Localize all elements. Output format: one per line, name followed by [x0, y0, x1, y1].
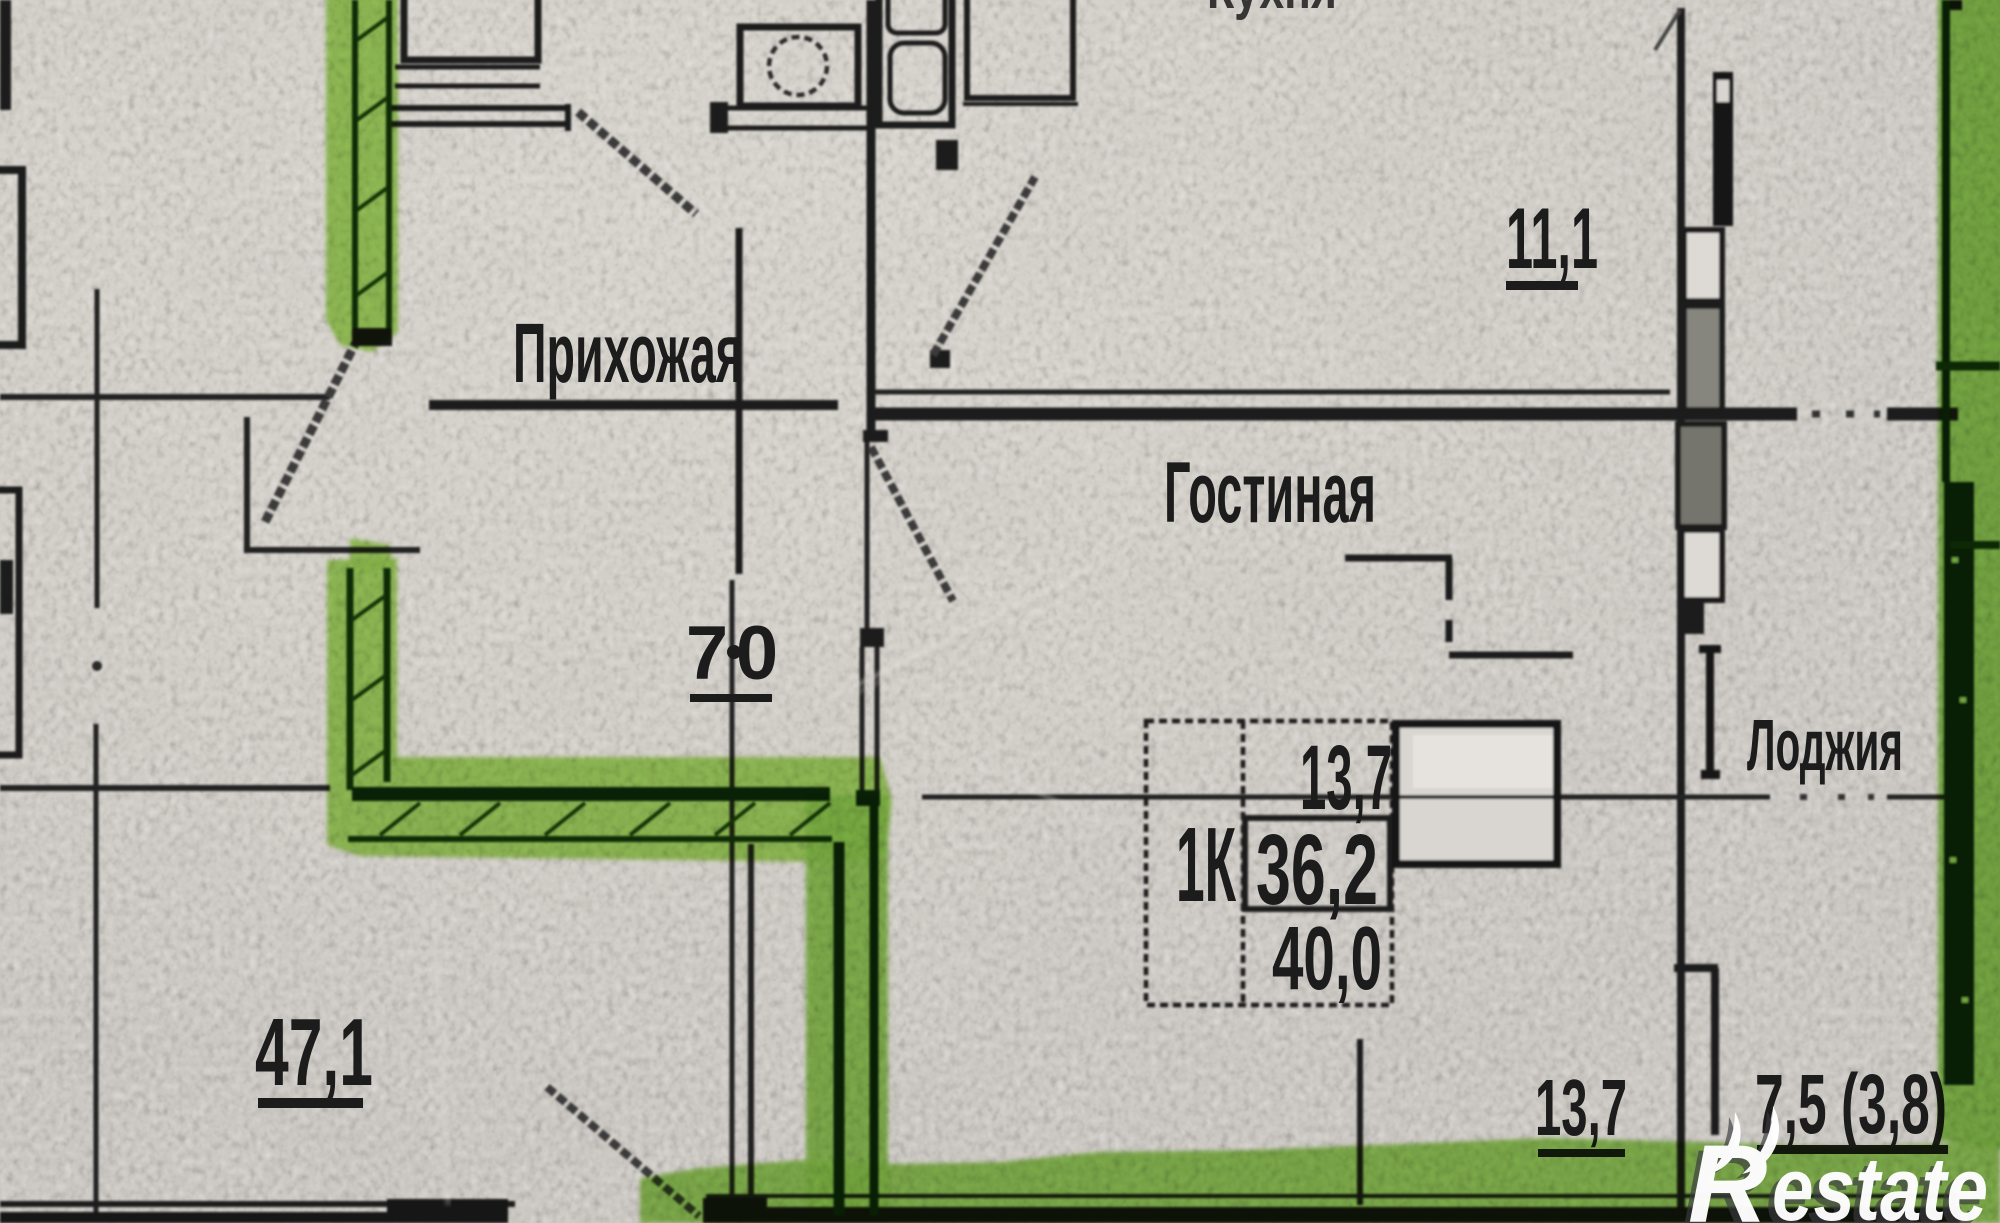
svg-text:Лоджия: Лоджия: [1747, 706, 1903, 786]
svg-text:11,1: 11,1: [1506, 191, 1598, 287]
svg-text:Гостиная: Гостиная: [1164, 445, 1376, 541]
svg-text:7: 7: [686, 611, 728, 696]
svg-text:Кухня: Кухня: [1207, 0, 1337, 21]
svg-text:47,1: 47,1: [255, 999, 373, 1106]
svg-text:40,0: 40,0: [1272, 909, 1382, 1009]
svg-text:estate: estate: [1772, 1140, 1988, 1223]
svg-text:7,5 (3,8): 7,5 (3,8): [1755, 1057, 1947, 1151]
svg-text:0: 0: [736, 611, 778, 696]
svg-text:R: R: [1688, 1123, 1767, 1223]
svg-text:Прихожая: Прихожая: [513, 306, 743, 400]
svg-text:1К: 1К: [1176, 806, 1236, 924]
